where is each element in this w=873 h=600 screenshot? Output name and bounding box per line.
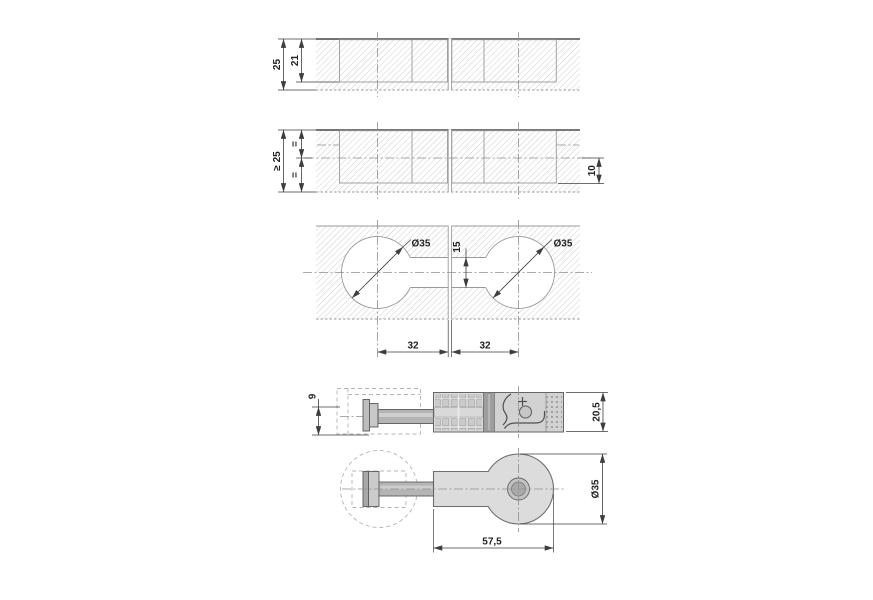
dim-text-bottom-offset: 10 — [587, 165, 598, 177]
view-fitting-plan: Ø35 57,5 — [341, 448, 608, 553]
panel-joint-gap — [449, 38, 452, 90]
cam-bolt-hole — [520, 406, 532, 418]
view-drilling-pattern: Ø35 Ø35 15 32 32 — [303, 220, 592, 357]
dim-text-spacing-left: 32 — [407, 341, 419, 352]
dowel-body-side — [434, 393, 564, 433]
dim-text-thickness: 25 — [272, 59, 283, 71]
dim-text-overall-length: 57,5 — [482, 537, 502, 548]
technical-drawing-canvas: 25 21 ≥ 25 — [0, 0, 873, 600]
connecting-bolt-side — [363, 400, 434, 432]
view-fitting-side: 9 20,5 — [308, 386, 609, 438]
drawing-page: 25 21 ≥ 25 — [0, 0, 873, 600]
dim-text-equal-top: = — [290, 141, 301, 147]
dim-text-pocket-depth: 21 — [290, 55, 301, 67]
dim-text-head: 9 — [308, 393, 319, 399]
dim-equal-spacing: = = — [290, 130, 312, 192]
dim-text-bore-dia-left: Ø35 — [412, 239, 431, 250]
dim-text-channel-width: 15 — [452, 241, 463, 253]
panel-joint-gap — [449, 129, 452, 192]
cam-housing-side — [495, 393, 563, 432]
dim-spacing-right-32: 32 — [452, 320, 519, 357]
view-panel-section-min25: ≥ 25 = = 10 — [272, 122, 604, 199]
dim-text-spacing-right: 32 — [479, 341, 491, 352]
dim-text-equal-bottom: = — [290, 172, 301, 178]
bolt-head-step — [370, 404, 379, 428]
dim-text-thickness-min: ≥ 25 — [272, 151, 283, 171]
dim-head-9: 9 — [308, 393, 370, 435]
dim-body-height-20-5: 20,5 — [566, 393, 608, 432]
bolt-head-plate — [363, 400, 370, 432]
knurl-texture — [547, 394, 563, 431]
dim-spacing-left-32: 32 — [378, 320, 449, 357]
dim-text-disc-dia: Ø35 — [591, 479, 602, 498]
bolt-shaft-highlight — [379, 413, 433, 417]
view-panel-section-25: 25 21 — [272, 32, 580, 97]
dim-text-bore-dia-right: Ø35 — [554, 239, 573, 250]
dim-text-body-height: 20,5 — [592, 402, 603, 422]
